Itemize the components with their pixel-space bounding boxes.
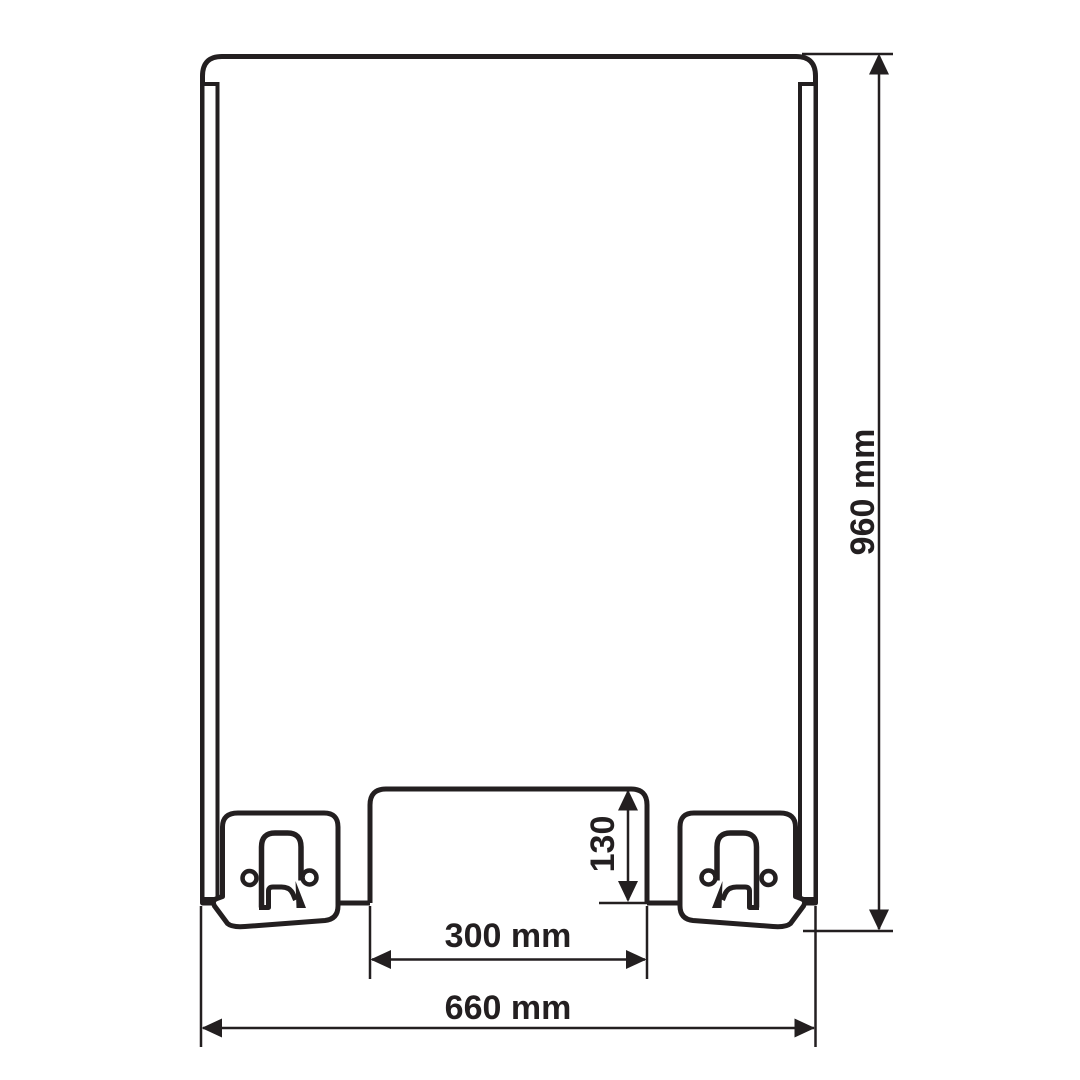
left-foot	[213, 813, 338, 927]
height-dimension-label: 960 mm	[844, 429, 882, 556]
screen-panel-outline	[203, 57, 816, 904]
screen-dimension-diagram: 960 mm 660 mm 300 mm 130	[0, 0, 1080, 1080]
arrowhead-right-icon	[626, 950, 647, 969]
opening-width-dimension: 300 mm	[370, 906, 647, 979]
arrowhead-left-icon	[371, 950, 392, 969]
arrowhead-left-icon	[202, 1019, 223, 1038]
opening-width-dimension-label: 300 mm	[445, 917, 572, 955]
width-dimension-label: 660 mm	[445, 989, 572, 1027]
technical-drawing: 960 mm 660 mm 300 mm 130	[0, 0, 1080, 1080]
right-foot	[680, 813, 805, 927]
arrowhead-down-icon	[618, 881, 638, 902]
arrowhead-down-icon	[869, 910, 889, 931]
opening-height-dimension: 130	[584, 790, 652, 904]
left-side-rail	[203, 84, 218, 899]
arrowhead-up-icon	[618, 790, 638, 811]
screen-panel	[203, 57, 816, 904]
arrowhead-up-icon	[869, 54, 889, 75]
opening-height-dimension-label: 130	[584, 816, 622, 873]
right-side-rail	[800, 84, 816, 899]
arrowhead-right-icon	[795, 1019, 816, 1038]
